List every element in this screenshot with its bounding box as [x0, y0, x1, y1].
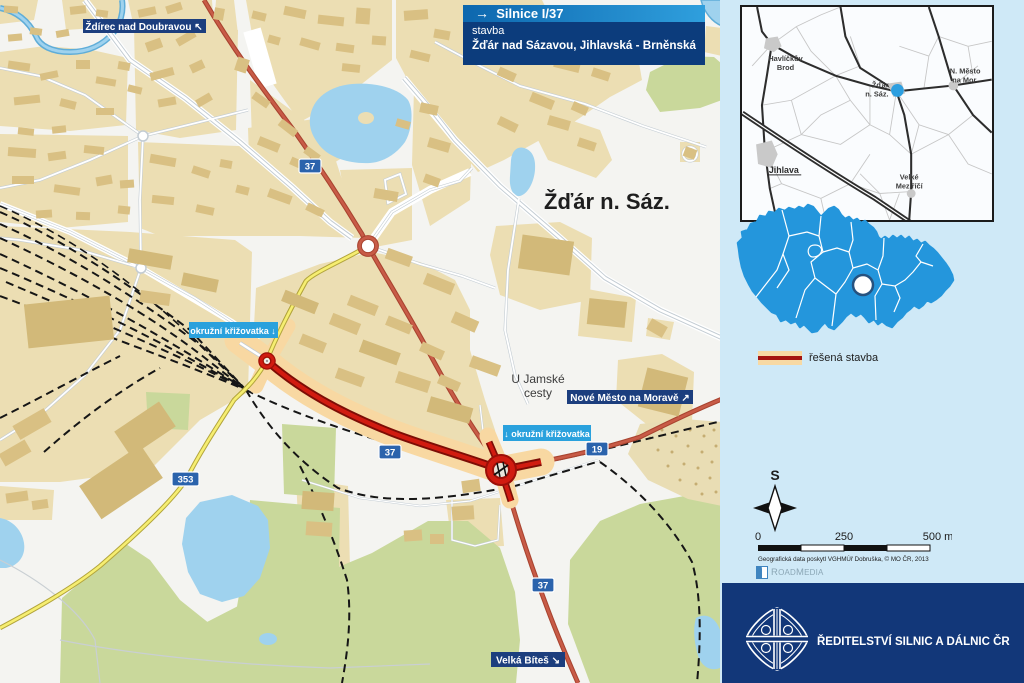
- svg-text:Brod: Brod: [777, 63, 795, 72]
- svg-text:250: 250: [835, 531, 853, 543]
- svg-text:Nové Město na Moravě ↗: Nové Město na Moravě ↗: [570, 393, 690, 404]
- svg-text:19: 19: [592, 445, 603, 456]
- svg-text:37: 37: [538, 581, 549, 592]
- svg-text:37: 37: [305, 162, 316, 173]
- svg-text:Žďár n. Sáz.: Žďár n. Sáz.: [544, 189, 670, 214]
- svg-text:Meziříčí: Meziříčí: [896, 182, 924, 191]
- svg-text:353: 353: [178, 475, 194, 486]
- svg-text:Velká Bíteš ↘: Velká Bíteš ↘: [496, 656, 560, 667]
- svg-text:cesty: cesty: [524, 386, 552, 400]
- svg-text:Velké: Velké: [900, 173, 919, 182]
- svg-text:S: S: [770, 468, 779, 483]
- svg-text:na Mor.: na Mor.: [952, 76, 978, 85]
- svg-text:Ždírec nad Doubravou ↖: Ždírec nad Doubravou ↖: [85, 20, 202, 33]
- svg-text:Jihlava: Jihlava: [769, 165, 799, 175]
- svg-text:37: 37: [385, 448, 396, 459]
- svg-text:okružní křižovatka ↓: okružní křižovatka ↓: [190, 326, 276, 336]
- svg-text:U Jamské: U Jamské: [511, 372, 565, 386]
- svg-text:0: 0: [755, 531, 761, 543]
- svg-text:500 m: 500 m: [923, 531, 952, 543]
- svg-text:↓ okružní křižovatka: ↓ okružní křižovatka: [504, 429, 591, 439]
- svg-text:N. Město: N. Město: [950, 67, 981, 76]
- svg-text:Havlíčkův: Havlíčkův: [768, 54, 803, 63]
- svg-text:Žďár: Žďár: [872, 80, 889, 89]
- svg-text:n. Sáz.: n. Sáz.: [865, 89, 888, 98]
